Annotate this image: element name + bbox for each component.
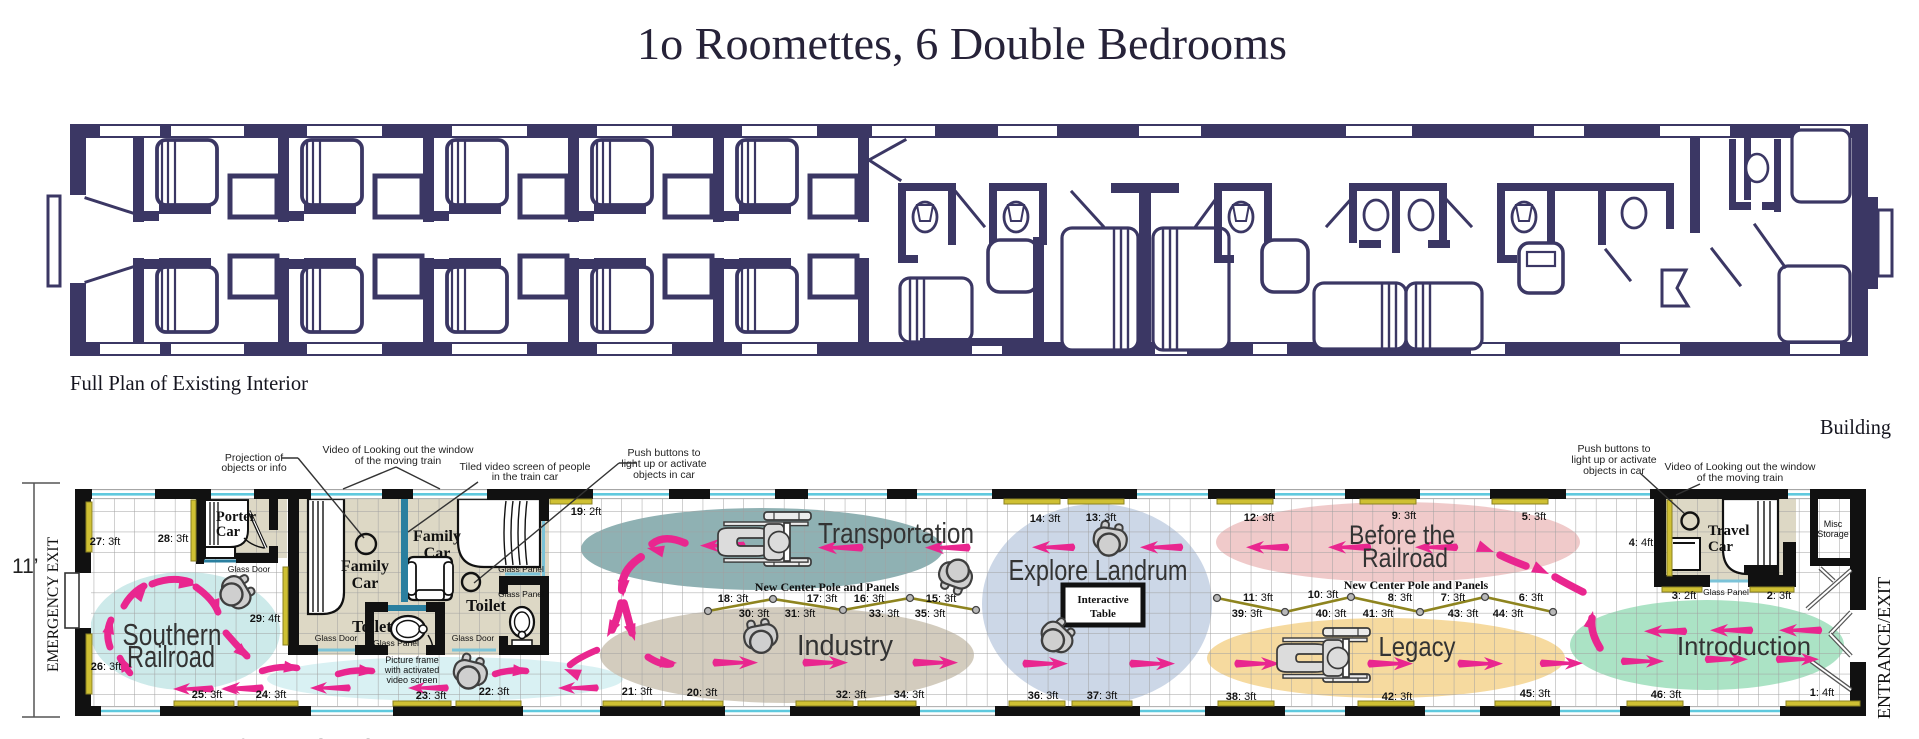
- svg-text:video screen: video screen: [386, 675, 437, 685]
- svg-text:Storage: Storage: [1817, 529, 1849, 539]
- svg-text:objects or info: objects or info: [221, 462, 287, 474]
- svg-text:Travel: Travel: [1708, 523, 1749, 539]
- svg-text:Glass Panel: Glass Panel: [498, 589, 544, 599]
- svg-text:ENTRANCE/EXIT: ENTRANCE/EXIT: [1874, 577, 1894, 719]
- svg-text:43: 3ft: 43: 3ft: [1448, 608, 1479, 620]
- svg-text:9: 3ft: 9: 3ft: [1392, 510, 1416, 522]
- svg-text:33: 3ft: 33: 3ft: [869, 608, 900, 620]
- svg-text:6: 3ft: 6: 3ft: [1519, 592, 1543, 604]
- svg-text:New Center Pole and Panels: New Center Pole and Panels: [1344, 578, 1489, 592]
- svg-text:Introduction: Introduction: [1677, 631, 1811, 661]
- svg-text:Car: Car: [1708, 539, 1733, 555]
- svg-text:17: 3ft: 17: 3ft: [807, 593, 838, 605]
- svg-text:45: 3ft: 45: 3ft: [1520, 688, 1551, 700]
- svg-text:objects in car: objects in car: [633, 469, 695, 481]
- svg-text:26: 3ft: 26: 3ft: [91, 661, 122, 673]
- svg-text:39: 3ft: 39: 3ft: [1232, 608, 1263, 620]
- svg-text:14: 3ft: 14: 3ft: [1030, 513, 1061, 525]
- svg-text:21: 3ft: 21: 3ft: [622, 686, 653, 698]
- svg-text:37: 3ft: 37: 3ft: [1087, 690, 1118, 702]
- svg-text:13: 3ft: 13: 3ft: [1086, 512, 1117, 524]
- svg-text:32: 3ft: 32: 3ft: [836, 689, 867, 701]
- svg-text:16: 3ft: 16: 3ft: [854, 593, 885, 605]
- svg-text:Toilet: Toilet: [352, 617, 392, 636]
- svg-text:20: 3ft: 20: 3ft: [687, 687, 718, 699]
- svg-text:27: 3ft: 27: 3ft: [90, 536, 121, 548]
- svg-text:23: 3ft: 23: 3ft: [416, 690, 447, 702]
- svg-text:18: 3ft: 18: 3ft: [718, 593, 749, 605]
- svg-text:11: 3ft: 11: 3ft: [1243, 592, 1273, 604]
- svg-text:Family: Family: [341, 558, 389, 575]
- svg-text:1: 4ft: 1: 4ft: [1810, 687, 1834, 699]
- svg-text:22: 3ft: 22: 3ft: [479, 686, 510, 698]
- svg-text:Glass Door: Glass Door: [315, 633, 358, 643]
- svg-text:Porter: Porter: [216, 509, 257, 525]
- svg-text:Industry: Industry: [797, 630, 893, 662]
- svg-text:8: 3ft: 8: 3ft: [1388, 592, 1412, 604]
- svg-text:Railroad: Railroad: [1362, 543, 1448, 573]
- svg-text:Family: Family: [413, 528, 461, 545]
- svg-text:1o Roomettes, 6 Double Bedroom: 1o Roomettes, 6 Double Bedrooms: [637, 19, 1287, 69]
- svg-text:28: 3ft: 28: 3ft: [158, 533, 189, 545]
- svg-text:Car: Car: [352, 575, 379, 592]
- svg-text:Misc: Misc: [1824, 519, 1843, 529]
- svg-text:38: 3ft: 38: 3ft: [1226, 691, 1257, 703]
- svg-text:Car: Car: [424, 545, 451, 562]
- svg-text:29: 4ft: 29: 4ft: [250, 613, 281, 625]
- svg-text:Glass Panel: Glass Panel: [373, 638, 419, 648]
- svg-text:4: 4ft: 4: 4ft: [1629, 537, 1653, 549]
- svg-text:Glass Panel: Glass Panel: [1703, 587, 1749, 597]
- svg-text:31: 3ft: 31: 3ft: [785, 608, 816, 620]
- svg-text:5: 3ft: 5: 3ft: [1522, 511, 1546, 523]
- svg-text:Table: Table: [1090, 608, 1116, 620]
- svg-text:New Center Pole and Panels: New Center Pole and Panels: [755, 580, 900, 594]
- svg-text:Glass Door: Glass Door: [228, 564, 271, 574]
- svg-text:with activated: with activated: [384, 665, 440, 675]
- svg-text:Car: Car: [216, 524, 241, 540]
- svg-text:35: 3ft: 35: 3ft: [915, 608, 946, 620]
- svg-text:Explore Landrum: Explore Landrum: [1009, 555, 1188, 587]
- svg-text:Picture frame: Picture frame: [385, 655, 439, 665]
- svg-text:19: 2ft: 19: 2ft: [571, 506, 602, 518]
- svg-text:40: 3ft: 40: 3ft: [1316, 608, 1347, 620]
- svg-text:Full Plan of Existing Interior: Full Plan of Existing Interior: [70, 371, 308, 395]
- svg-text:36: 3ft: 36: 3ft: [1028, 690, 1059, 702]
- svg-text:42: 3ft: 42: 3ft: [1382, 691, 1413, 703]
- svg-text:Transportation: Transportation: [818, 518, 974, 550]
- svg-text:Legacy: Legacy: [1379, 631, 1456, 662]
- svg-text:Railroad: Railroad: [127, 639, 215, 674]
- svg-text:25: 3ft: 25: 3ft: [192, 689, 223, 701]
- svg-text:24: 3ft: 24: 3ft: [256, 689, 287, 701]
- svg-text:in the train car: in the train car: [492, 471, 559, 483]
- svg-text:12: 3ft: 12: 3ft: [1244, 512, 1275, 524]
- svg-text:7: 3ft: 7: 3ft: [1441, 592, 1465, 604]
- svg-text:44: 3ft: 44: 3ft: [1493, 608, 1524, 620]
- svg-text:Interactive: Interactive: [1077, 594, 1128, 606]
- svg-text:10: 3ft: 10: 3ft: [1308, 589, 1339, 601]
- svg-text:Glass Panel: Glass Panel: [498, 564, 544, 574]
- svg-text:34: 3ft: 34: 3ft: [894, 689, 925, 701]
- svg-text:46: 3ft: 46: 3ft: [1651, 689, 1682, 701]
- svg-text:15: 3ft: 15: 3ft: [926, 593, 957, 605]
- svg-text:Glass Door: Glass Door: [452, 633, 495, 643]
- svg-text:Building: Building: [1820, 415, 1891, 439]
- svg-text:11’: 11’: [12, 555, 38, 578]
- svg-text:EMERGENCY EXIT: EMERGENCY EXIT: [45, 536, 62, 672]
- svg-text:2: 3ft: 2: 3ft: [1767, 590, 1791, 602]
- svg-text:objects in car: objects in car: [1583, 465, 1645, 477]
- svg-text:3: 2ft: 3: 2ft: [1672, 590, 1696, 602]
- svg-text:of the moving train: of the moving train: [1697, 472, 1784, 484]
- svg-text:30: 3ft: 30: 3ft: [739, 608, 770, 620]
- svg-text:41: 3ft: 41: 3ft: [1363, 608, 1394, 620]
- svg-text:of the moving train: of the moving train: [355, 455, 442, 467]
